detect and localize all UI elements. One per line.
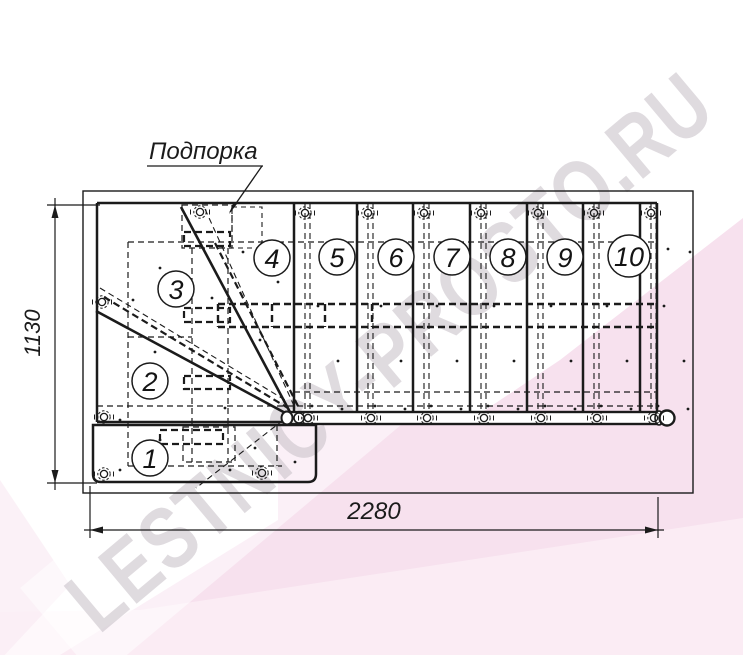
fastener-dot bbox=[663, 305, 666, 308]
fastener-dot bbox=[493, 305, 496, 308]
staircase-plan-svg: LESTNICY-PROSTO.RU bbox=[0, 0, 743, 655]
fastener-dot bbox=[119, 419, 122, 422]
step-number-label: 8 bbox=[500, 243, 515, 273]
step-marker-2: 2 bbox=[132, 363, 168, 399]
fastener-dot bbox=[517, 408, 520, 411]
screw-icon bbox=[95, 468, 114, 480]
fastener-dot bbox=[380, 305, 383, 308]
fastener-dot bbox=[132, 299, 135, 302]
fastener-dot bbox=[294, 461, 297, 464]
fastener-dot bbox=[259, 339, 262, 342]
step-number-label: 7 bbox=[444, 243, 460, 273]
fastener-dot bbox=[404, 408, 407, 411]
fastener-dot bbox=[667, 248, 670, 251]
step-number-label: 4 bbox=[264, 244, 279, 274]
fastener-dot bbox=[570, 360, 573, 363]
step-marker-5: 5 bbox=[319, 239, 355, 275]
step-number-label: 6 bbox=[388, 243, 404, 273]
watermark-background: LESTNICY-PROSTO.RU bbox=[0, 29, 743, 655]
step-marker-7: 7 bbox=[434, 239, 470, 275]
fastener-dot bbox=[317, 305, 320, 308]
fastener-dot bbox=[574, 408, 577, 411]
fastener-dot bbox=[550, 305, 553, 308]
fastener-dot bbox=[159, 439, 162, 442]
fastener-dot bbox=[436, 305, 439, 308]
step-number-label: 2 bbox=[141, 367, 157, 397]
fastener-dot bbox=[544, 405, 547, 408]
fastener-dot bbox=[456, 360, 459, 363]
step-number-label: 1 bbox=[142, 444, 157, 474]
dimension-width-label: 2280 bbox=[346, 498, 401, 525]
fastener-dot bbox=[242, 251, 245, 254]
step-marker-3: 3 bbox=[158, 271, 194, 307]
step-marker-4: 4 bbox=[254, 240, 290, 276]
support-callout-label: Подпорка bbox=[149, 138, 258, 165]
arrow-up-icon bbox=[52, 205, 59, 218]
step-number-label: 9 bbox=[557, 243, 572, 273]
fastener-dot bbox=[159, 267, 162, 270]
screw-icon bbox=[191, 206, 210, 218]
fastener-dot bbox=[154, 351, 157, 354]
fastener-dot bbox=[657, 405, 660, 408]
fastener-dot bbox=[337, 360, 340, 363]
fastener-dot bbox=[341, 408, 344, 411]
step-marker-1: 1 bbox=[132, 440, 168, 476]
fastener-dot bbox=[224, 407, 227, 410]
fastener-dot bbox=[626, 360, 629, 363]
step-marker-10: 10 bbox=[608, 235, 650, 277]
fastener-dot bbox=[687, 408, 690, 411]
fastener-dot bbox=[630, 408, 633, 411]
fastener-dot bbox=[254, 447, 257, 450]
dimension-height-label: 1130 bbox=[20, 309, 45, 357]
step-marker-9: 9 bbox=[547, 239, 583, 275]
fastener-dot bbox=[606, 305, 609, 308]
dimension-height: 1130 bbox=[20, 198, 100, 490]
step-number-label: 10 bbox=[614, 242, 644, 272]
fastener-dot bbox=[229, 469, 232, 472]
fastener-dot bbox=[487, 405, 490, 408]
arrow-down-icon bbox=[52, 470, 59, 483]
fastener-dot bbox=[513, 360, 516, 363]
step-marker-8: 8 bbox=[490, 239, 526, 275]
fastener-dot bbox=[311, 405, 314, 408]
screw-icon bbox=[93, 296, 112, 308]
fastener-dot bbox=[430, 405, 433, 408]
fastener-dot bbox=[460, 408, 463, 411]
step-marker-6: 6 bbox=[378, 239, 414, 275]
fastener-dot bbox=[689, 251, 692, 254]
fastener-dot bbox=[400, 360, 403, 363]
fastener-dot bbox=[119, 469, 122, 472]
fastener-dot bbox=[683, 360, 686, 363]
fastener-dot bbox=[374, 405, 377, 408]
step-number-label: 3 bbox=[168, 275, 183, 305]
fastener-dot bbox=[600, 405, 603, 408]
technical-drawing-page: LESTNICY-PROSTO.RU bbox=[0, 0, 743, 655]
step-number-label: 5 bbox=[329, 243, 345, 273]
fastener-dot bbox=[211, 297, 214, 300]
fastener-dot bbox=[277, 281, 280, 284]
